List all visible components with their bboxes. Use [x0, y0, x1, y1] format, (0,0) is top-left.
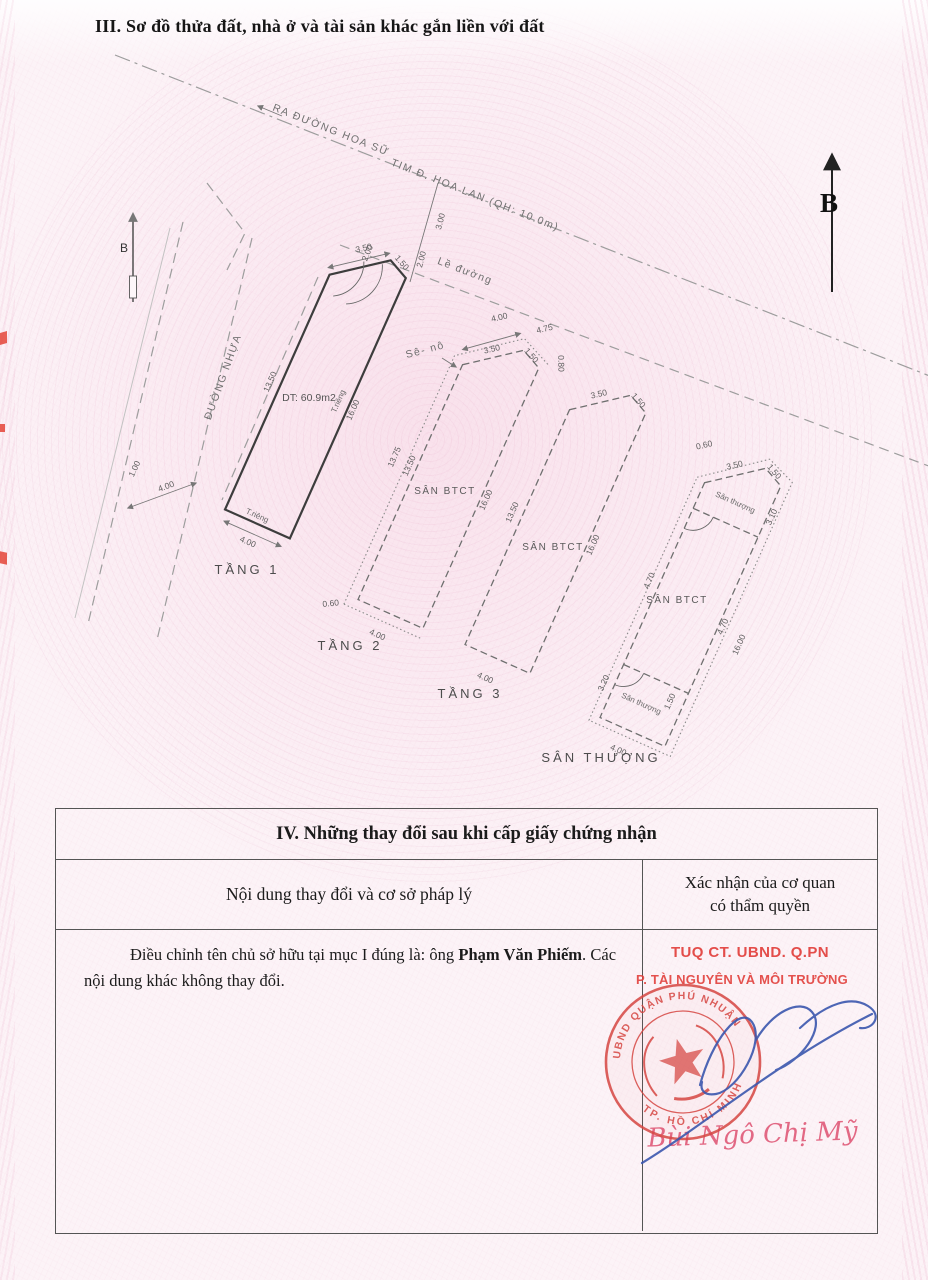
floor3-label: TẦNG 3 — [438, 686, 503, 701]
col-confirmation-header: Xác nhận của cơ quan có thẩm quyền — [643, 860, 877, 929]
road-label: RA ĐƯỜNG HOA SỮ — [271, 101, 392, 159]
floor3-plan: 3.50 1.50 13.50 16.00 4.00 — [439, 362, 661, 702]
dim-label: 1.50 — [522, 346, 541, 365]
dim-label: 1.50 — [765, 462, 784, 481]
dim-label: 0.60 — [322, 597, 340, 609]
dim-label: 13.50 — [261, 370, 279, 394]
dim-label: 16.00 — [730, 633, 748, 657]
left-edge-red-mark — [0, 331, 7, 345]
dim-label: 13.50 — [400, 454, 418, 478]
col-confirmation-line2: có thẩm quyền — [710, 895, 810, 917]
section-iv-title-text: IV. Những thay đổi sau khi cấp giấy chứn… — [276, 824, 657, 845]
left-edge-red-mark — [0, 551, 7, 564]
road-edge-line — [340, 245, 928, 474]
dim-label: 16.00 — [477, 488, 495, 512]
dim-label: 4.00 — [238, 534, 257, 550]
dim-label: 0.80 — [556, 355, 566, 372]
road-label: TIM Đ. HOA LAN (QH: 10.0m) — [389, 157, 561, 234]
asphalt-road-left-edge — [88, 222, 183, 624]
yard-label: SÂN BTCT — [646, 593, 707, 606]
col-changes-header-text: Nội dung thay đổi và cơ sở pháp lý — [226, 884, 472, 905]
entry-text: Điều chỉnh tên chủ sở hữu tại mục I đúng… — [130, 945, 454, 964]
to-street-arrow — [258, 106, 282, 116]
road-outer-line — [75, 228, 170, 618]
left-edge-red-mark — [0, 424, 5, 432]
dim-label: 0.60 — [695, 438, 714, 452]
table-header-row: Nội dung thay đổi và cơ sở pháp lý Xác n… — [56, 860, 877, 930]
asphalt-road-right-edge — [157, 238, 252, 640]
dim-label: 16.00 — [344, 398, 362, 422]
floor1-plan: 3.50 1.50 13.50 T.riêng 16.00 T.riêng 4.… — [200, 224, 423, 566]
dim-label: 13.50 — [503, 500, 521, 524]
dim-label: 1.50 — [629, 391, 648, 410]
guilloche-pattern — [0, 0, 875, 885]
dim-label: 4.00 — [609, 742, 628, 758]
road-centerline-hoa-lan — [115, 55, 928, 384]
setback-tick — [410, 183, 438, 282]
dim-label: 4.70 — [715, 617, 731, 636]
floor1-label: TẦNG 1 — [215, 562, 280, 577]
north-arrow-small: B — [120, 214, 137, 302]
section-iv-title: IV. Những thay đổi sau khi cấp giấy chứn… — [56, 809, 877, 860]
dim-label: 3.50 — [483, 342, 502, 356]
yard-label: SÂN BTCT — [522, 540, 583, 553]
dim-label: 13.75 — [385, 445, 403, 469]
dim-label: 2.00 — [414, 250, 428, 269]
wall-note: T.riêng — [244, 507, 270, 525]
yard-label: SÂN BTCT — [414, 484, 475, 497]
col-confirmation-line1: Xác nhận của cơ quan — [685, 872, 836, 894]
owner-name: Phạm Văn Phiếm — [458, 945, 582, 964]
north-label: B — [820, 188, 838, 218]
floor2-label: TẦNG 2 — [318, 638, 383, 653]
canopy-arrow — [442, 358, 456, 367]
road-bend-line — [207, 183, 245, 270]
parcel-area-label: DT: 60.9m2 — [282, 392, 336, 404]
dim-label: 4.00 — [368, 627, 387, 643]
dim-label: 3.00 — [433, 212, 447, 231]
change-entry-cell: Điều chỉnh tên chủ sở hữu tại mục I đúng… — [56, 930, 643, 1231]
stamp-authority-line2: P. TÀI NGUYÊN VÀ MÔI TRƯỜNG — [603, 972, 881, 987]
dim-label: 4.00 — [156, 479, 175, 494]
parcel-boundary-dashed — [222, 277, 318, 500]
dim-label: 4.75 — [535, 322, 554, 336]
section-iii-title: III. Sơ đồ thửa đất, nhà ở và tài sản kh… — [95, 16, 815, 37]
right-edge-pattern — [902, 0, 928, 1280]
dim-label: 3.50 — [354, 241, 373, 255]
dim-label: 16.00 — [584, 533, 602, 557]
dim-label: 1.00 — [126, 459, 142, 478]
floor2-plan: 4.00 4.75 0.80 3.50 1.50 13.75 13.50 16.… — [316, 282, 583, 666]
canopy-label: Sê- nô — [404, 339, 446, 361]
terrace-label: Sân thượng — [620, 691, 663, 717]
dim-label: 4.00 — [490, 310, 509, 324]
north-label: B — [120, 241, 128, 255]
dim-label: 3.20 — [595, 673, 611, 692]
roads: RA ĐƯỜNG HOA SỮ TIM Đ. HOA LAN (QH: 10.0… — [75, 55, 928, 640]
section-iv-table: IV. Những thay đổi sau khi cấp giấy chứn… — [55, 808, 878, 1234]
road-label: ĐƯỜNG NHỰA — [201, 332, 244, 421]
roof-plan: 0.60 3.50 1.50 3.10 Sân thượng 4.70 4.70… — [566, 429, 817, 784]
certificate-page: III. Sơ đồ thửa đất, nhà ở và tài sản kh… — [0, 0, 928, 1280]
dim-label: 3.50 — [590, 387, 609, 401]
dim-label: 1.50 — [393, 253, 412, 272]
road-edge-label: Lề đường — [436, 255, 494, 287]
dim-label: 3.50 — [725, 458, 744, 472]
dim-label: 4.70 — [641, 571, 657, 590]
terrace-label: Sân thượng — [714, 490, 757, 516]
wall-note: T.riêng — [329, 388, 347, 414]
change-entry-paragraph: Điều chỉnh tên chủ sở hữu tại mục I đúng… — [84, 942, 616, 993]
north-arrow-large: B — [820, 156, 838, 292]
dim-label: 1.50 — [662, 692, 678, 711]
left-edge-pattern — [0, 0, 15, 1280]
road-width-dim-line — [128, 483, 196, 508]
col-changes-header: Nội dung thay đổi và cơ sở pháp lý — [56, 860, 643, 929]
stamp-authority-line1: TUQ CT. UBND. Q.PN — [640, 944, 860, 961]
dim-label: 2.00 — [359, 243, 375, 262]
dim-label: 4.00 — [476, 670, 495, 686]
roof-label: SÂN THƯỢNG — [541, 750, 660, 765]
dim-label: 3.10 — [764, 507, 780, 526]
